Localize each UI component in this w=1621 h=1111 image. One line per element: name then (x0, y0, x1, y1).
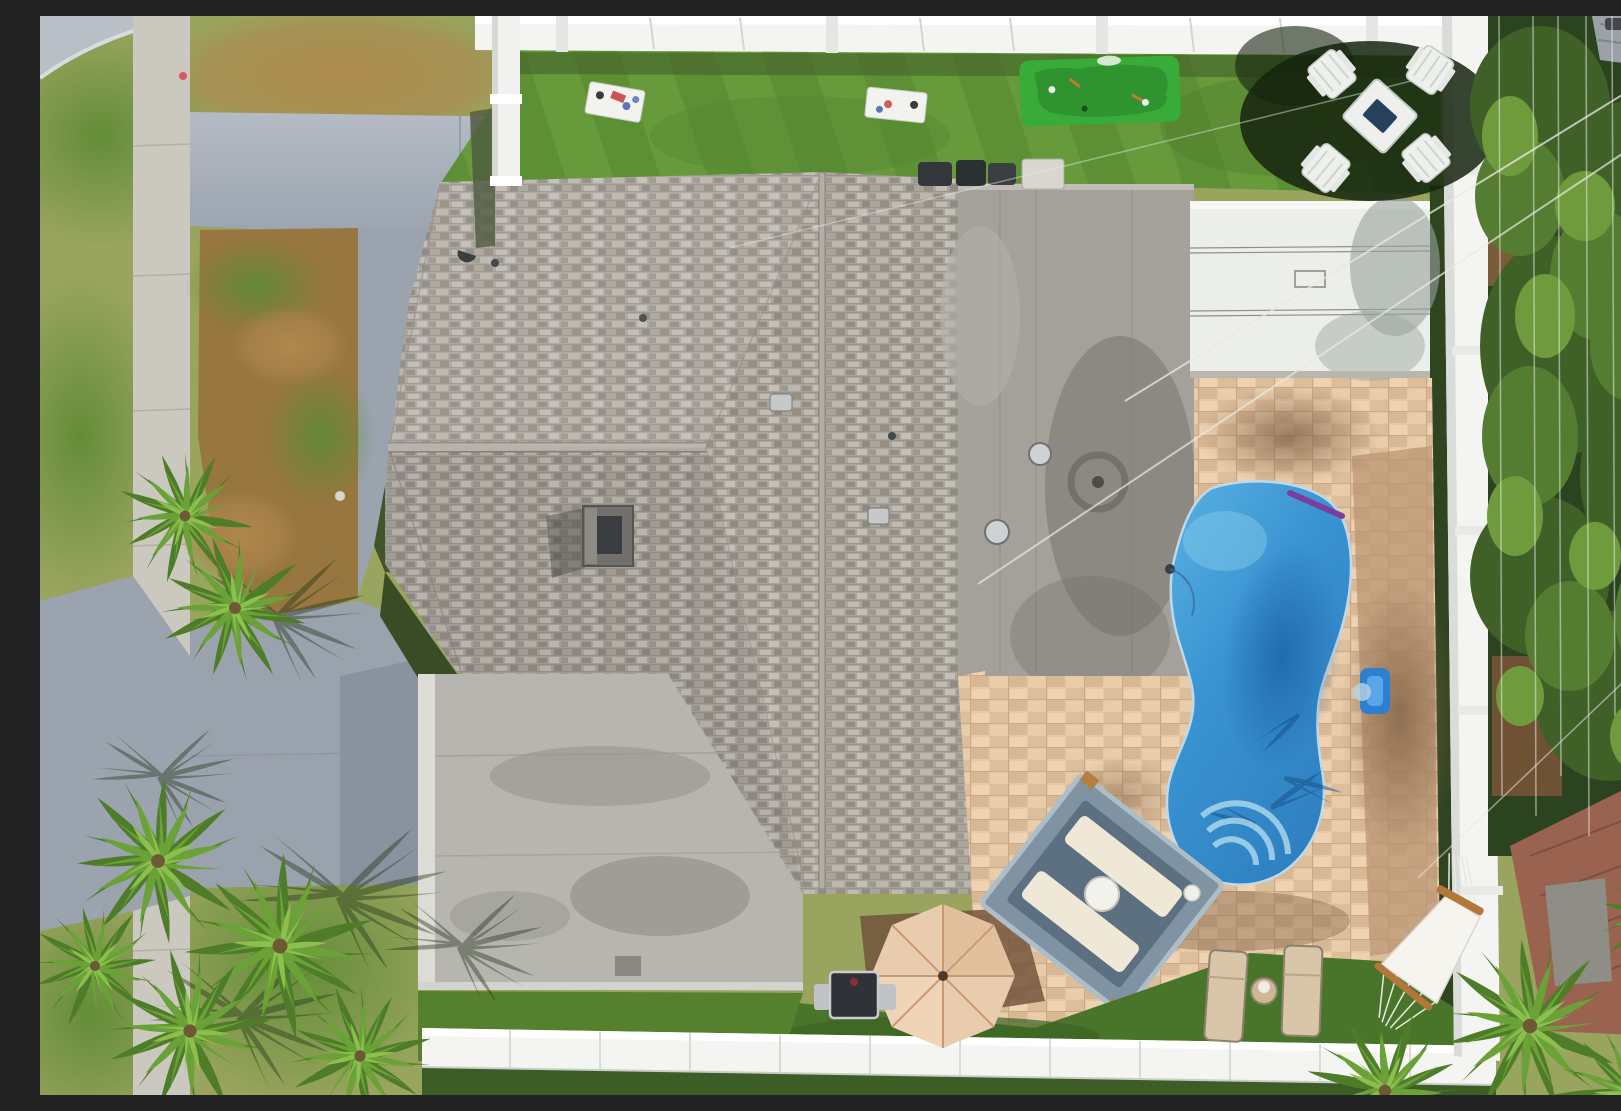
rear-flat-roof (940, 184, 1195, 696)
cornhole-board (865, 87, 928, 123)
white-patio-roof (1190, 196, 1440, 381)
aerial-photo (40, 16, 1621, 1095)
sidewalk (133, 16, 190, 1095)
patio-umbrella (871, 904, 1015, 1048)
putting-green (1019, 53, 1181, 127)
